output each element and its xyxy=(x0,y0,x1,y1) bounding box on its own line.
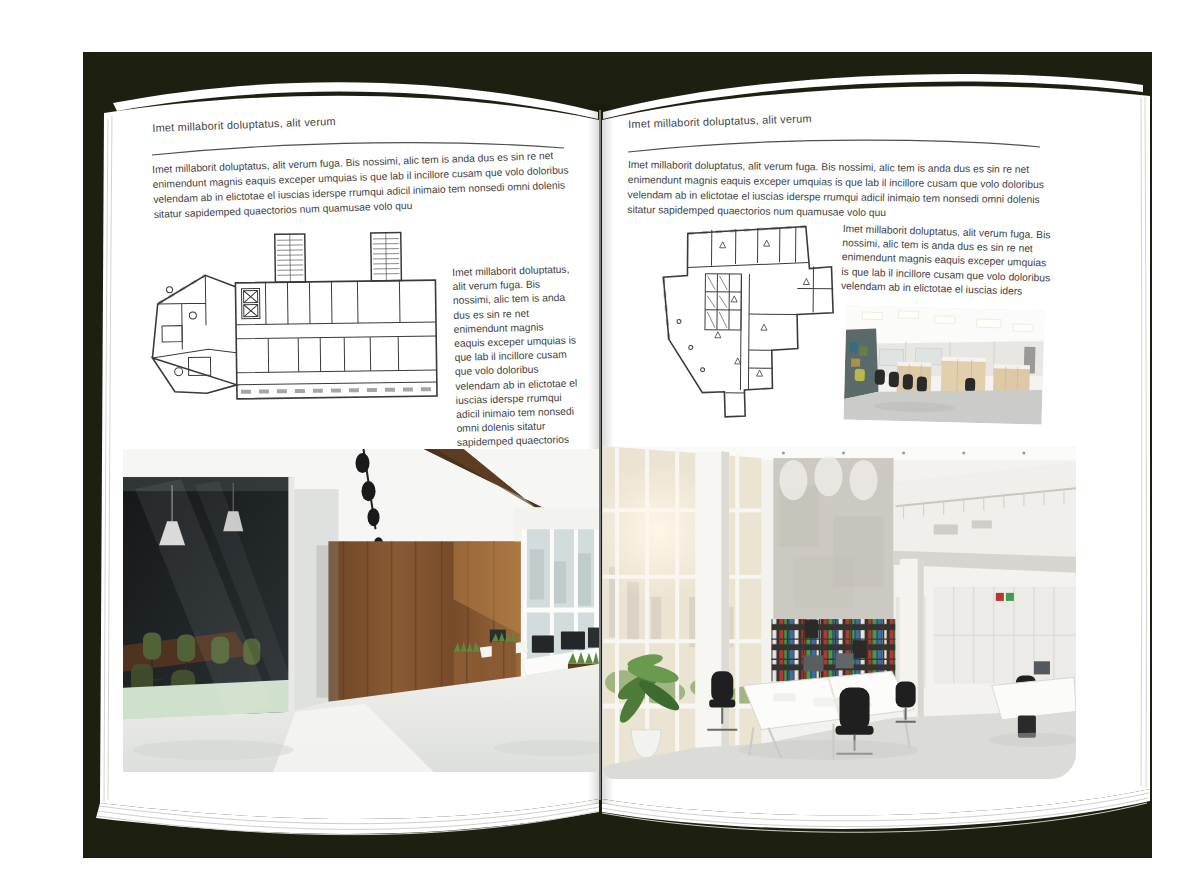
window-wall xyxy=(603,446,761,779)
floor-shadow xyxy=(133,740,293,760)
magazine-spread-mockup: Imet millaborit doluptatus, alit verum I… xyxy=(0,0,1200,891)
glass-partition-frame xyxy=(288,477,294,718)
right-header-rule xyxy=(626,135,1044,159)
floor-shadow xyxy=(738,740,918,760)
first-aid-sign xyxy=(996,593,1004,601)
glass-pane xyxy=(294,489,338,716)
left-glass-zone xyxy=(844,328,880,400)
right-page-photo-small xyxy=(844,305,1045,424)
right-page-intro: Imet millaborit doluptatus, alit verum f… xyxy=(627,158,1062,223)
floor-shadow-right xyxy=(989,733,1076,747)
left-floor-plan xyxy=(147,226,450,422)
left-page-side-text: Imet millaborit doluptatus, alit verum f… xyxy=(452,263,580,465)
exit-sign xyxy=(1006,593,1014,601)
right-floor-plan xyxy=(644,217,846,429)
right-page-side-text: Imet millaborit doluptatus, alit verum f… xyxy=(841,222,1055,300)
concrete-wall xyxy=(773,456,893,621)
left-page-photo xyxy=(123,449,599,772)
right-page-photo xyxy=(603,446,1076,779)
bookshelf xyxy=(771,619,895,681)
white-cabinets xyxy=(934,587,1076,684)
